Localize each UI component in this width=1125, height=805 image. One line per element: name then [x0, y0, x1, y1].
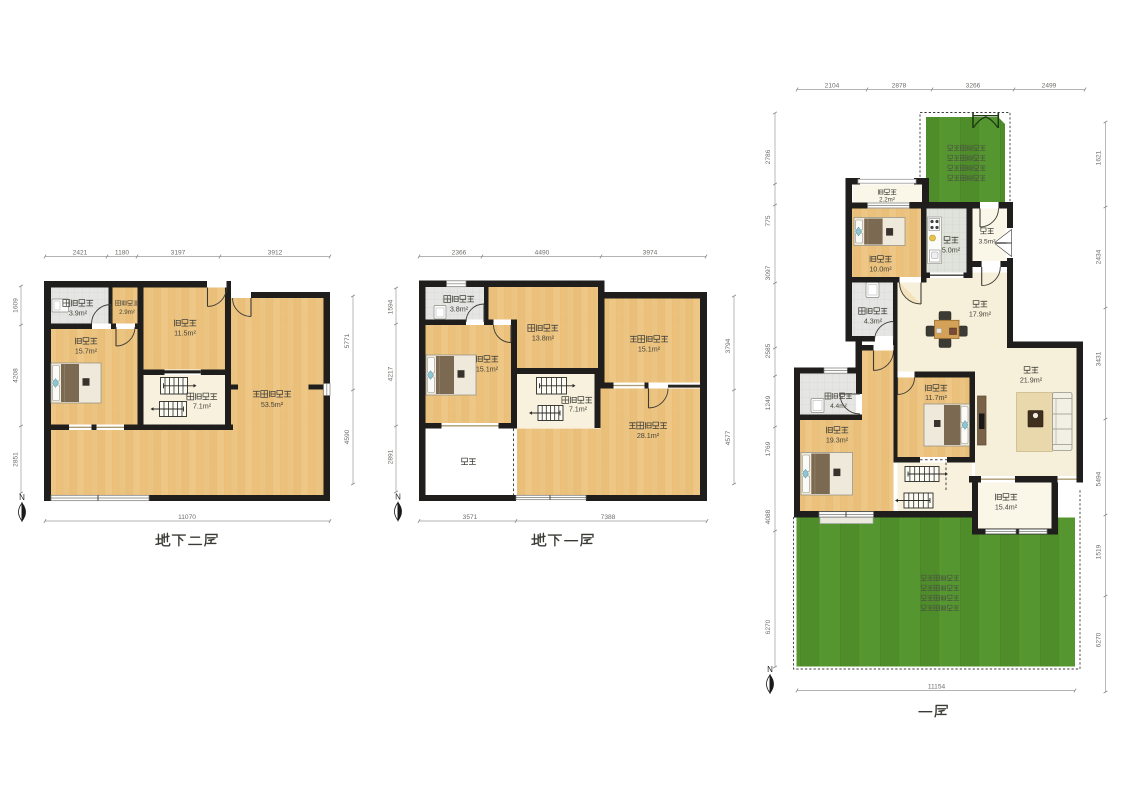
svg-text:15.1m²: 15.1m² — [476, 365, 499, 374]
svg-text:3266: 3266 — [966, 83, 981, 90]
svg-text:3794: 3794 — [725, 338, 732, 353]
svg-text:1621: 1621 — [1096, 150, 1103, 165]
svg-text:2585: 2585 — [765, 343, 772, 358]
svg-text:6270: 6270 — [765, 619, 772, 634]
svg-text:1180: 1180 — [115, 249, 130, 256]
svg-text:53.5m²: 53.5m² — [261, 400, 284, 409]
svg-text:2786: 2786 — [765, 149, 772, 164]
svg-text:4490: 4490 — [535, 249, 550, 256]
svg-text:2.2m²: 2.2m² — [879, 197, 895, 204]
svg-text:2878: 2878 — [892, 83, 907, 90]
svg-text:5771: 5771 — [344, 333, 351, 348]
svg-text:5.0m²: 5.0m² — [942, 246, 961, 255]
svg-text:5494: 5494 — [1096, 471, 1103, 486]
svg-text:775: 775 — [765, 215, 772, 226]
svg-text:1249: 1249 — [765, 395, 772, 410]
svg-text:28.1m²: 28.1m² — [637, 431, 660, 440]
svg-text:4217: 4217 — [388, 366, 395, 381]
svg-text:3.8m²: 3.8m² — [450, 305, 469, 314]
svg-text:4590: 4590 — [344, 429, 351, 444]
svg-text:19.3m²: 19.3m² — [826, 436, 849, 445]
svg-text:2499: 2499 — [1042, 83, 1057, 90]
svg-text:7388: 7388 — [601, 514, 616, 521]
svg-text:15.7m²: 15.7m² — [75, 347, 98, 356]
svg-text:1519: 1519 — [1096, 544, 1103, 559]
svg-text:N: N — [395, 493, 401, 502]
svg-text:4088: 4088 — [765, 509, 772, 524]
svg-text:11070: 11070 — [178, 514, 196, 521]
svg-text:11.5m²: 11.5m² — [174, 329, 196, 338]
svg-text:3.9m²: 3.9m² — [69, 309, 88, 318]
svg-text:1769: 1769 — [765, 441, 772, 456]
svg-text:N: N — [19, 493, 25, 502]
svg-text:4208: 4208 — [13, 368, 20, 383]
svg-text:17.9m²: 17.9m² — [969, 310, 992, 319]
svg-text:11154: 11154 — [928, 684, 946, 691]
svg-text:2.9m²: 2.9m² — [119, 309, 135, 316]
svg-text:3571: 3571 — [463, 514, 478, 521]
svg-text:2421: 2421 — [73, 249, 88, 256]
svg-text:6270: 6270 — [1096, 632, 1103, 647]
svg-text:3431: 3431 — [1096, 351, 1103, 366]
svg-text:2851: 2851 — [13, 452, 20, 467]
svg-text:21.9m²: 21.9m² — [1020, 376, 1043, 385]
svg-text:11.7m²: 11.7m² — [925, 393, 947, 402]
svg-text:1594: 1594 — [388, 299, 395, 314]
svg-text:15.1m²: 15.1m² — [638, 345, 661, 354]
svg-text:2434: 2434 — [1096, 249, 1103, 264]
svg-text:3.5m²: 3.5m² — [979, 239, 997, 246]
svg-text:N: N — [767, 665, 773, 674]
svg-text:3912: 3912 — [268, 249, 283, 256]
svg-text:2891: 2891 — [388, 449, 395, 464]
svg-text:4577: 4577 — [725, 430, 732, 445]
svg-text:3097: 3097 — [765, 265, 772, 280]
svg-text:2366: 2366 — [452, 249, 467, 256]
svg-text:7.1m²: 7.1m² — [569, 405, 588, 414]
svg-text:4.3m²: 4.3m² — [864, 317, 883, 326]
svg-text:13.8m²: 13.8m² — [532, 334, 555, 343]
svg-text:15.4m²: 15.4m² — [995, 503, 1018, 512]
svg-text:2104: 2104 — [825, 83, 840, 90]
svg-text:3974: 3974 — [643, 249, 658, 256]
svg-text:7.1m²: 7.1m² — [193, 402, 212, 411]
svg-text:4.4m²: 4.4m² — [830, 403, 848, 410]
svg-text:3197: 3197 — [171, 249, 186, 256]
svg-text:1609: 1609 — [13, 298, 20, 313]
svg-text:10.0m²: 10.0m² — [869, 265, 892, 274]
